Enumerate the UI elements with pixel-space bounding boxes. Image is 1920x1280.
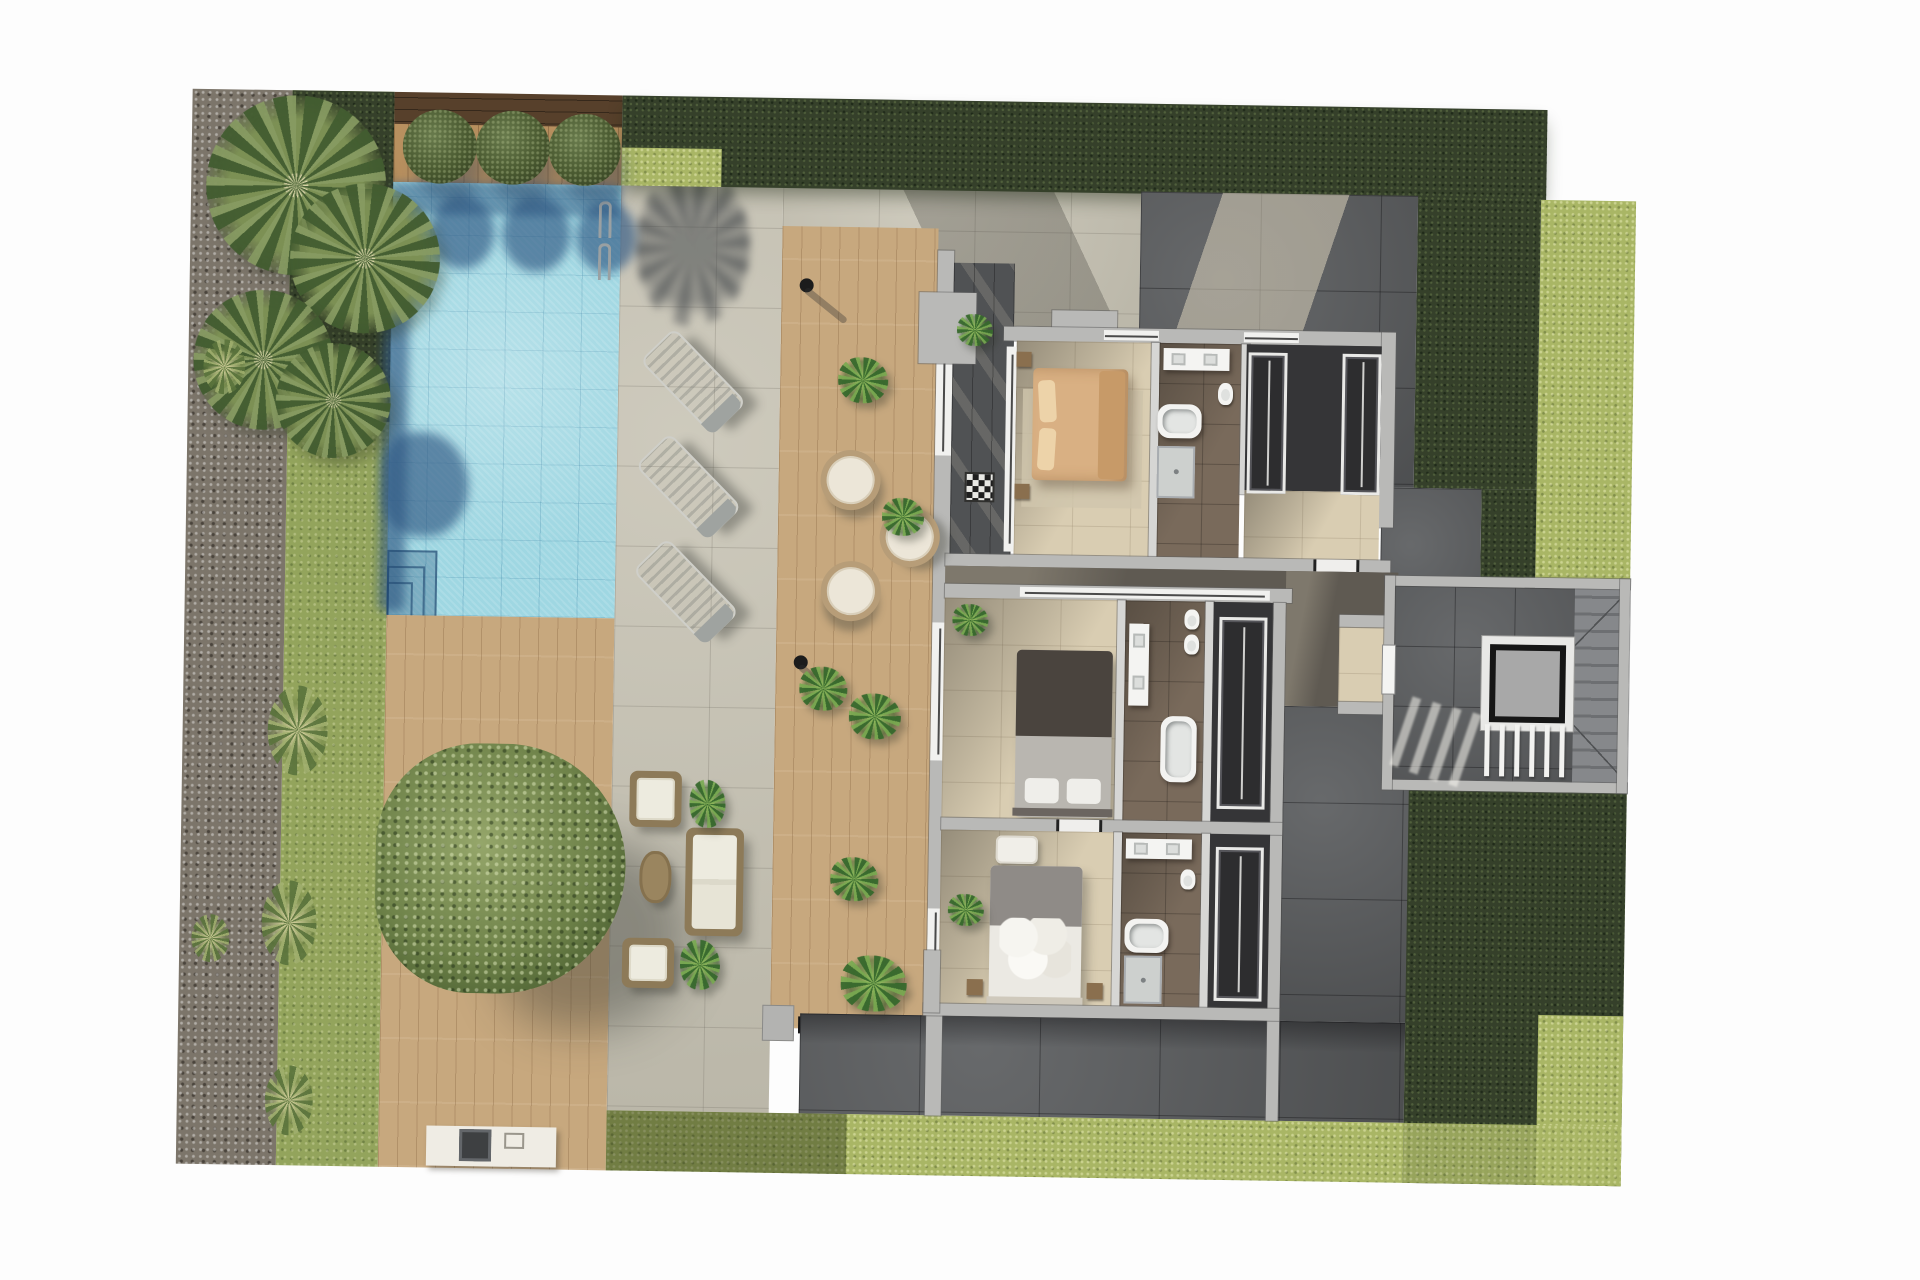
terrace-plant-3 — [948, 894, 984, 927]
bathroom3-bathtub — [1124, 918, 1169, 953]
dressing-wardrobe-right — [1340, 354, 1381, 496]
bathroom1-bathtub — [1157, 404, 1202, 439]
lounge-plant-2 — [680, 939, 721, 990]
bed2-pillow-2 — [1067, 779, 1101, 805]
deck-post — [763, 1006, 794, 1040]
hedge-right-column — [1414, 196, 1542, 490]
bath3-basin-2 — [1166, 843, 1180, 855]
bathroom2-bathtub — [1160, 716, 1197, 783]
bath3-basin-1 — [1134, 843, 1148, 855]
checkered-doormat — [966, 474, 992, 500]
bed2-headboard — [1012, 808, 1112, 818]
stair-railing-slat-4 — [1529, 725, 1535, 777]
bed-bedroom3 — [988, 865, 1082, 1005]
lounge-coffee-table — [639, 851, 672, 903]
bbq-grill-icon — [459, 1129, 491, 1161]
bed3-pillow-heap — [999, 917, 1072, 982]
bed-bedroom1 — [1032, 368, 1129, 481]
bed2-pillow-1 — [1025, 778, 1059, 804]
deck-plant-4 — [849, 693, 902, 740]
deck-plant-3 — [799, 666, 848, 711]
bath1-basin-1 — [1171, 353, 1185, 365]
pool-bush-shadow-2 — [502, 196, 571, 273]
bed1-nightstand-1 — [1016, 352, 1031, 367]
bathroom1-shower — [1156, 446, 1195, 499]
pool-steps-3 — [386, 582, 413, 618]
stair-wing-wall-right — [1617, 579, 1630, 793]
lounge-armchair — [629, 771, 682, 828]
bathroom2-bidet — [1184, 634, 1199, 654]
grass-bottom-shade — [606, 1110, 847, 1174]
elevator-car — [1495, 650, 1560, 717]
deck-plant-2 — [882, 498, 925, 537]
suite1-top-window-2 — [1244, 332, 1299, 343]
window-left-1 — [935, 350, 953, 455]
deck-lamp-1 — [800, 278, 814, 292]
bed3-nightstand-1 — [967, 979, 983, 995]
bath2-basin-1 — [1133, 634, 1145, 648]
stair-railing-slat-5 — [1544, 725, 1550, 777]
pool-ladder-icon — [598, 201, 612, 238]
bathroom3-toilet — [1180, 869, 1195, 889]
bbq-sink-icon — [504, 1133, 524, 1149]
bed1-nightstand-2 — [1014, 484, 1029, 499]
bridge-wall-top — [1339, 615, 1387, 628]
bed2-throw — [1016, 650, 1113, 737]
lounge-sofa — [684, 828, 744, 937]
deck-plant-1 — [838, 357, 889, 404]
grass-bottom-strip — [606, 1110, 1404, 1183]
bathroom3-shower — [1123, 955, 1162, 1004]
garden-bottom-right — [1403, 790, 1627, 1186]
stair-railing-slat-2 — [1499, 724, 1505, 776]
bathroom2-toilet — [1184, 609, 1199, 629]
suite1-door-gap — [1313, 559, 1359, 572]
render-canvas — [0, 0, 1920, 1280]
bath1-basin-2 — [1203, 354, 1217, 366]
suite1-top-window-1 — [1104, 330, 1159, 341]
bathroom2-vanity — [1128, 623, 1149, 705]
closet2-wardrobe — [1217, 617, 1268, 810]
dressing-wardrobe-left — [1246, 352, 1287, 494]
dressing-lower-floor — [1243, 490, 1379, 560]
hedge-light-strip — [621, 147, 722, 187]
bed3-pouf — [996, 835, 1038, 864]
bbq-counter — [426, 1126, 557, 1168]
bed3-nightstand-2 — [1087, 983, 1103, 999]
scene — [176, 89, 1638, 1187]
terrace-plant-1 — [957, 314, 993, 347]
terrace-plant-2 — [952, 604, 988, 637]
bed-bedroom2 — [1014, 650, 1113, 818]
hedge-top-band — [621, 95, 1547, 200]
bathroom1-vanity — [1163, 348, 1229, 371]
bed1-pillow-2 — [1037, 428, 1057, 471]
grass-patch-bottom — [1403, 1123, 1622, 1186]
bathroom3-vanity — [1126, 838, 1192, 859]
closet3-wardrobe — [1213, 847, 1263, 1002]
bath2-basin-2 — [1132, 676, 1144, 690]
bed1-pillow-1 — [1038, 380, 1057, 423]
bed1-duvet-fold — [1098, 371, 1126, 479]
deck-terrace-middle — [770, 226, 939, 1030]
lounge-pouf — [622, 938, 675, 989]
stair-railing-slat-3 — [1514, 725, 1520, 777]
bridge-wall-bottom — [1338, 702, 1386, 715]
pool-ladder-icon-2 — [598, 243, 612, 280]
grass-right-column — [1535, 200, 1636, 579]
suite2-door-gap — [1056, 819, 1102, 832]
paving-bottom-terrace — [799, 1013, 1405, 1122]
stair-railing-slat-6 — [1559, 725, 1565, 777]
lounge-plant-1 — [689, 780, 726, 829]
bathroom1-toilet — [1218, 383, 1233, 405]
deck-plant-5 — [830, 857, 879, 902]
dressing-shadow — [1243, 490, 1379, 560]
stair-bridge-floor — [1338, 627, 1387, 703]
stair-railing-slat-1 — [1484, 724, 1490, 776]
deck-lamp-2 — [794, 655, 808, 669]
stair-wing-door — [1382, 645, 1395, 693]
house-corner-stub — [923, 950, 940, 1012]
